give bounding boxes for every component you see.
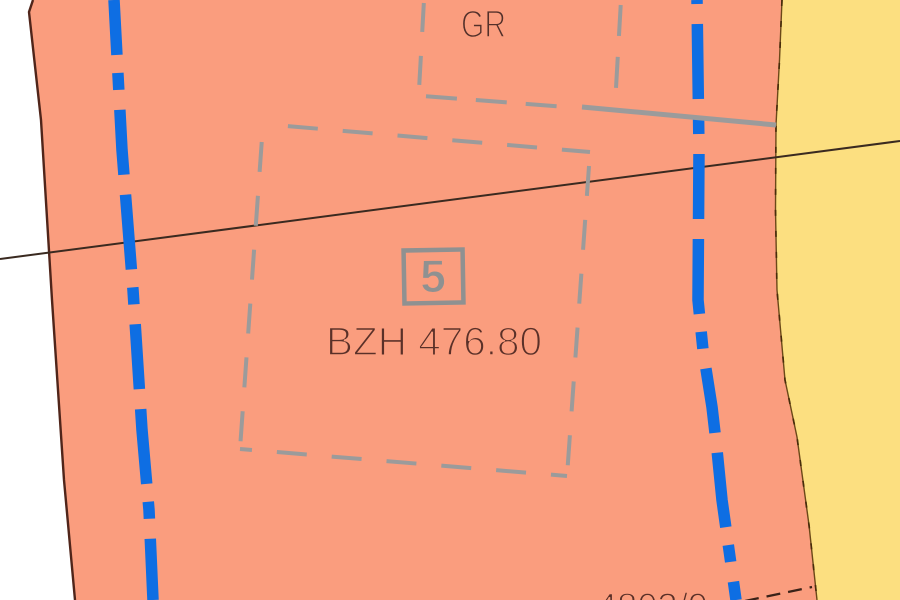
svg-text:BZH 476.80: BZH 476.80 <box>326 320 542 364</box>
svg-text:4803/9: 4803/9 <box>597 586 708 600</box>
svg-text:GR: GR <box>461 4 506 46</box>
svg-text:5: 5 <box>420 250 446 302</box>
